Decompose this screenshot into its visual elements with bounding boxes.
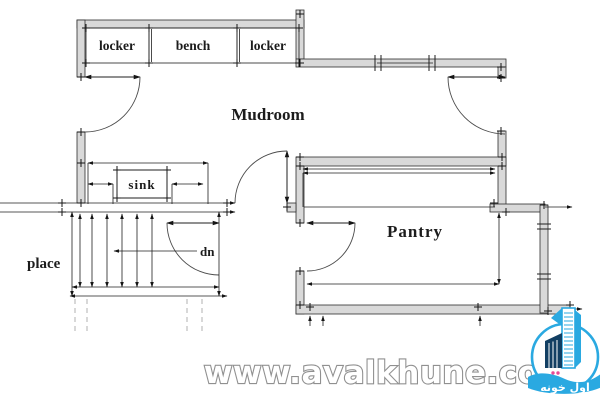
wall-left-lower	[77, 132, 85, 203]
wall-top	[77, 20, 304, 28]
door-swing-arc	[235, 151, 287, 203]
fireplace-partial-label: place	[27, 256, 61, 272]
wall-right-upper	[498, 67, 506, 78]
door-pantry	[307, 223, 355, 271]
stair-hidden-lines	[75, 299, 202, 333]
door-swing-arc	[307, 223, 355, 271]
door-mudroom-hall	[235, 151, 287, 203]
mudroom-label: Mudroom	[231, 105, 304, 124]
logo-tower-side	[575, 310, 581, 368]
sink-label: sink	[128, 177, 155, 192]
stair-down-label: dn	[200, 244, 215, 259]
logo-dot	[556, 371, 559, 374]
door-swing-arc	[85, 77, 140, 132]
pantry-label: Pantry	[387, 222, 443, 241]
avalkhune-logo: اول خونه	[528, 308, 600, 394]
floor-plan-image: locker bench locker	[0, 0, 600, 400]
wall-pantry-south	[296, 305, 570, 314]
wall-left-upper	[77, 20, 85, 77]
door-mudroom-left	[85, 77, 140, 132]
watermark-text: www.avalkhune.com	[204, 355, 572, 391]
wall-pantry-north	[296, 157, 506, 166]
locker-bench-row: locker bench locker	[86, 28, 299, 63]
bench-label: bench	[176, 38, 211, 53]
sink-counter: sink	[88, 163, 208, 204]
logo-dot	[551, 371, 554, 374]
door-top-right	[448, 77, 505, 134]
locker-right-label: locker	[250, 38, 286, 53]
logo-brand-text: اول خونه	[540, 381, 590, 394]
window-marks-top	[375, 55, 435, 71]
locker-left-label: locker	[99, 38, 135, 53]
door-swing-arc	[448, 77, 505, 134]
floor-plan-drawing: locker bench locker	[0, 0, 600, 400]
wall-pantry-east	[540, 205, 548, 313]
wall-mid-right	[490, 204, 545, 212]
